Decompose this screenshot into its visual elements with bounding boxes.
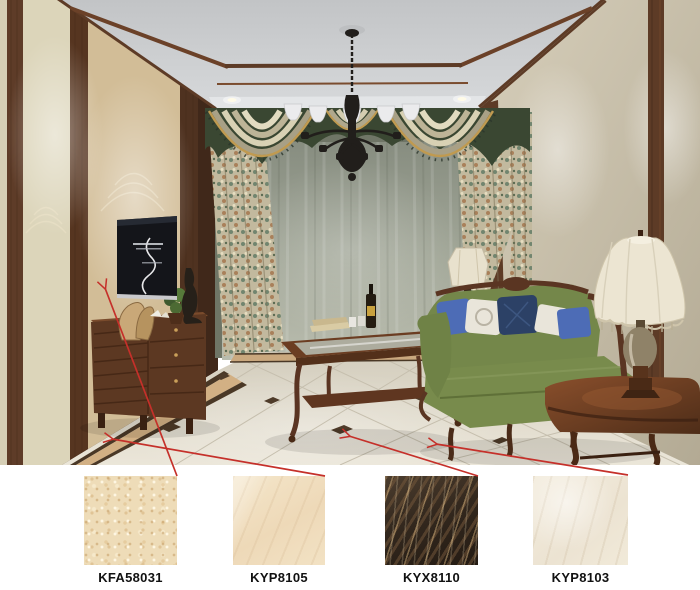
tile-catalog-page: KFA58031 KYP8105 KYX8110 KYP8103 xyxy=(0,0,700,590)
tile-image-kyp8103 xyxy=(533,476,628,565)
tile-swatch-kyx8110: KYX8110 xyxy=(385,476,478,585)
tile-code-label: KYX8110 xyxy=(385,570,478,585)
tile-swatch-kfa58031: KFA58031 xyxy=(84,476,177,585)
tv xyxy=(117,216,177,300)
room-render xyxy=(0,0,700,465)
tile-image-kyx8110 xyxy=(385,476,478,565)
tile-image-kfa58031 xyxy=(84,476,177,565)
tile-swatch-kyp8105: KYP8105 xyxy=(233,476,325,585)
tile-swatch-kyp8103: KYP8103 xyxy=(533,476,628,585)
tile-code-label: KYP8105 xyxy=(233,570,325,585)
tile-image-kyp8105 xyxy=(233,476,325,565)
tile-code-label: KYP8103 xyxy=(533,570,628,585)
tile-code-label: KFA58031 xyxy=(84,570,177,585)
